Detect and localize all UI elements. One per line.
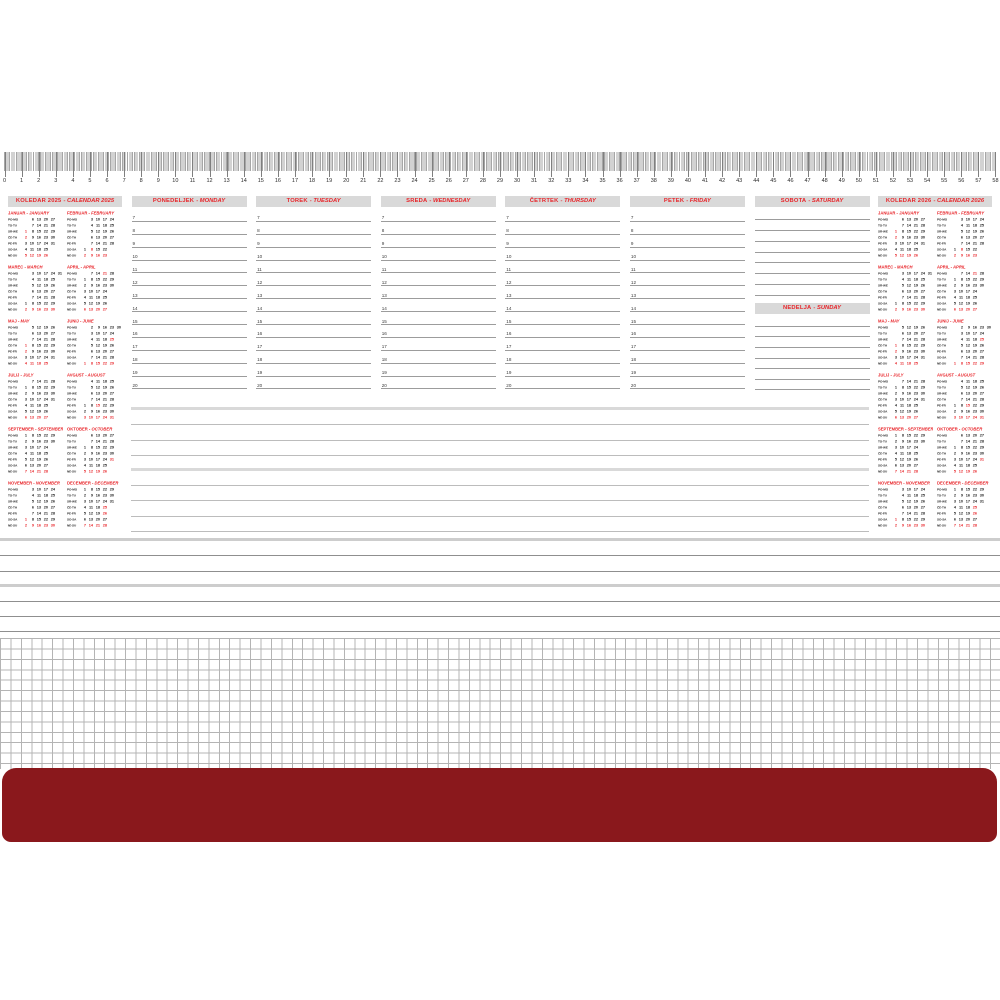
mini-month-day-label: NE-SU: [937, 308, 949, 311]
mini-month-week-row: NE-SU291623: [937, 252, 992, 258]
mini-month-date: 19: [970, 343, 977, 347]
mini-month-date: 16: [963, 493, 970, 497]
mini-month-date: 28: [48, 379, 55, 383]
mini-month-day-label: SO-SA: [937, 356, 949, 359]
hour-label: 18: [631, 357, 636, 362]
mini-month-title: DECEMBERDECEMBER: [937, 481, 992, 486]
mini-month-date: 17: [93, 499, 100, 503]
mini-month-day-label: ČE-TH: [67, 452, 79, 455]
hour-row: 13: [132, 286, 247, 299]
hour-row: 17: [381, 338, 496, 351]
mini-month-date: 31: [977, 457, 984, 461]
hour-label: 8: [506, 228, 509, 233]
mini-month-date: 15: [34, 433, 41, 437]
mini-month-date: 29: [48, 517, 55, 521]
mini-month-title: SEPTEMBERSEPTEMBER: [8, 427, 63, 432]
hour-row: 15: [381, 312, 496, 325]
mini-month-date: 23: [100, 409, 107, 413]
mini-month-date: 7: [897, 337, 904, 341]
mini-month-day-label: TO-TU: [8, 224, 20, 227]
mini-month-date: 26: [48, 499, 55, 503]
mini-month-date: 12: [34, 283, 41, 287]
mini-month-date: 26: [41, 457, 48, 461]
mini-month-day-label: TO-TU: [937, 278, 949, 281]
mini-month-date: 11: [897, 451, 904, 455]
hour-label: 8: [382, 228, 385, 233]
mini-month-day-label: TO-TU: [67, 386, 79, 389]
mini-month-date: 30: [984, 325, 991, 329]
mini-month-date: 26: [911, 409, 918, 413]
mini-month-date: 31: [925, 271, 932, 275]
mini-month-date: 8: [27, 301, 34, 305]
hour-row: 12: [381, 273, 496, 286]
mini-month-date: 13: [963, 235, 970, 239]
hour-rows: 7891011121314151617181920: [132, 209, 247, 389]
mini-month-date: 14: [897, 469, 904, 473]
hour-label: 9: [133, 241, 136, 246]
mini-month-date: 28: [107, 355, 114, 359]
ruler-cm-tick: [620, 152, 621, 177]
mini-month-date: 19: [911, 325, 918, 329]
ruler-cm-tick: [551, 152, 552, 177]
mini-month-date: 1: [79, 487, 86, 491]
hour-label: 12: [506, 280, 511, 285]
mini-month-date: 20: [100, 235, 107, 239]
mini-month-date: 16: [34, 439, 41, 443]
mini-month-date: 1: [79, 403, 86, 407]
hour-label: 11: [133, 267, 138, 272]
mini-month-date: 4: [897, 277, 904, 281]
mini-month: OKTOBEROCTOBERPO-MO6132027TO-TU7142128SR…: [937, 427, 992, 475]
hour-label: 10: [382, 254, 387, 259]
mini-month-date: 9: [956, 493, 963, 497]
mini-month-date: 10: [86, 415, 93, 419]
mini-month-date: 29: [107, 487, 114, 491]
mini-month-date: 1: [20, 517, 27, 521]
ruler-cm-number: 34: [582, 178, 588, 184]
ruler-cm-tick: [790, 152, 791, 177]
mini-month-day-label: PO-MO: [878, 272, 890, 275]
mini-month-week-row: NE-SU310172431: [67, 414, 122, 420]
mini-month-date: 3: [79, 457, 86, 461]
mini-month-date: 23: [41, 307, 48, 311]
mini-month-date: 3: [20, 397, 27, 401]
mini-month-date: 25: [911, 403, 918, 407]
hour-row: 12: [132, 273, 247, 286]
hour-label: 18: [506, 357, 511, 362]
mini-month-date: 21: [41, 511, 48, 515]
day-name-en: THURSDAY: [561, 196, 596, 207]
mini-month-date: 11: [956, 463, 963, 467]
mini-month-date: 3: [956, 331, 963, 335]
mini-month-date: 10: [897, 397, 904, 401]
mini-month-date: 11: [34, 493, 41, 497]
mini-month-date: 20: [911, 505, 918, 509]
hour-label: 10: [257, 254, 262, 259]
hour-row: 20: [132, 377, 247, 390]
mini-month-date: 22: [970, 277, 977, 281]
mini-month-date: 2: [890, 439, 897, 443]
mini-month-date: 3: [890, 355, 897, 359]
mini-month-date: 20: [911, 331, 918, 335]
ruler-cm-tick: [773, 152, 774, 177]
ruler-cm-tick: [261, 152, 262, 177]
mini-month-date: 21: [41, 379, 48, 383]
full-width-line: [0, 541, 1000, 556]
hour-label: 10: [506, 254, 511, 259]
hour-label: 17: [133, 344, 138, 349]
mini-month-date: 8: [956, 403, 963, 407]
note-line: [131, 425, 869, 440]
mini-month: FEBRUARFEBRUARYPO-MO3101724TO-TU4111825S…: [937, 211, 992, 259]
mini-month-day-label: NE-SU: [878, 470, 890, 473]
hour-row: 11: [630, 261, 745, 274]
mini-month-day-label: PE-FR: [937, 296, 949, 299]
hour-label: 16: [382, 331, 387, 336]
day-name-en: MONDAY: [196, 196, 225, 207]
mini-month-date: 15: [963, 277, 970, 281]
hour-row: 19: [256, 364, 371, 377]
mini-month-week-row: NE-SU29162330: [8, 306, 63, 312]
mini-month-date: 12: [904, 283, 911, 287]
mini-month: SEPTEMBERSEPTEMBERPO-MO18152229TO-TU2916…: [8, 427, 63, 475]
mini-month-date: 28: [918, 223, 925, 227]
mini-month-name-en: MARCH: [893, 265, 912, 270]
mini-month-name-en: APRIL: [949, 265, 965, 270]
mini-month-date: 9: [86, 493, 93, 497]
mini-month-date: 19: [41, 325, 48, 329]
hour-label: 15: [506, 319, 511, 324]
ruler-cm-number: 51: [873, 178, 879, 184]
mini-month-date: 24: [41, 445, 48, 449]
mini-month-date: 31: [107, 415, 114, 419]
mini-month-day-label: PE-FR: [878, 458, 890, 461]
mini-month-date: 6: [20, 463, 27, 467]
mini-month-date: 18: [100, 223, 107, 227]
mini-month-name-en: JANUARY: [895, 211, 919, 216]
mini-month-date: 20: [970, 433, 977, 437]
day-name-sl: PONEDELJEK: [153, 196, 194, 207]
ruler-cm-tick: [415, 152, 416, 177]
mini-month-day-label: SR-WE: [878, 446, 890, 449]
mini-month-date: 9: [897, 391, 904, 395]
sunday-line: [755, 369, 870, 380]
mini-month-date: 16: [34, 349, 41, 353]
ruler-cm-number: 33: [565, 178, 571, 184]
mini-month-date: 6: [79, 517, 86, 521]
ruler-cm-number: 20: [343, 178, 349, 184]
hour-row: 9: [630, 235, 745, 248]
mini-month-date: 12: [904, 499, 911, 503]
ruler-cm-tick: [842, 152, 843, 177]
mini-month-date: 9: [27, 235, 34, 239]
mini-month-date: 29: [977, 277, 984, 281]
mini-month-day-label: TO-TU: [937, 494, 949, 497]
mini-month-date: 30: [107, 493, 114, 497]
ruler-cm-tick: [637, 152, 638, 177]
mini-month-date: 23: [911, 439, 918, 443]
mini-month-date: 23: [970, 253, 977, 257]
mini-month-date: 20: [41, 289, 48, 293]
mini-month-date: 23: [41, 235, 48, 239]
mini-month-name-sl: FEBRUAR: [937, 211, 957, 216]
mini-month-date: 7: [27, 379, 34, 383]
ruler-cm-tick: [363, 152, 364, 177]
mini-month-date: 2: [949, 409, 956, 413]
mini-month-date: 12: [34, 325, 41, 329]
mini-month-day-label: PE-FR: [937, 350, 949, 353]
mini-month-date: 12: [93, 385, 100, 389]
hour-label: 12: [133, 280, 138, 285]
mini-month-date: 23: [970, 451, 977, 455]
hour-row: 7: [505, 209, 620, 222]
saturday-line: [755, 285, 870, 296]
hour-label: 15: [257, 319, 262, 324]
mini-month-date: 26: [918, 283, 925, 287]
hour-label: 14: [631, 306, 636, 311]
ruler-cm-tick: [534, 152, 535, 177]
mini-month-date: 31: [48, 355, 55, 359]
saturday-line: [755, 253, 870, 264]
ruler-cm-tick: [722, 152, 723, 177]
mini-month-date: 21: [970, 271, 977, 275]
mini-month-day-label: SO-SA: [67, 248, 79, 251]
mini-month-date: 19: [963, 469, 970, 473]
mini-month-week-row: NE-SU18152229: [937, 360, 992, 366]
mini-month-date: 12: [86, 511, 93, 515]
ruler-cm-tick: [73, 152, 74, 177]
mini-month-name-en: JUNE: [949, 319, 964, 324]
mini-month-day-label: PO-MO: [8, 326, 20, 329]
mini-month-date: 29: [107, 403, 114, 407]
ruler-cm-number: 27: [463, 178, 469, 184]
sunday-line: [755, 359, 870, 370]
mini-month-day-label: PO-MO: [8, 272, 20, 275]
mini-month-date: 5: [949, 301, 956, 305]
mini-month-date: 23: [970, 409, 977, 413]
mini-month-date: 6: [897, 217, 904, 221]
ruler-cm-tick: [483, 152, 484, 177]
ruler-cm-tick: [756, 152, 757, 177]
mini-month-date: 2: [890, 235, 897, 239]
mini-month-date: 29: [107, 277, 114, 281]
ruler-cm-number: 9: [157, 178, 160, 184]
ruler-cm-number: 25: [429, 178, 435, 184]
mini-month-date: 27: [918, 331, 925, 335]
mini-month-date: 8: [897, 301, 904, 305]
mini-month-date: 6: [956, 235, 963, 239]
mini-month-date: 26: [970, 469, 977, 473]
mini-month-date: 14: [93, 271, 100, 275]
mini-month-name-sl: JULIJ: [878, 373, 889, 378]
mini-month-date: 17: [34, 355, 41, 359]
mini-month-date: 27: [107, 235, 114, 239]
mini-month-date: 2: [20, 235, 27, 239]
mini-month-date: 3: [949, 457, 956, 461]
mini-month-date: 24: [107, 217, 114, 221]
mini-month-day-label: SO-SA: [67, 356, 79, 359]
mini-month-name-sl: AVGUST: [67, 373, 84, 378]
mini-month-date: 3: [890, 241, 897, 245]
mini-month-name-sl: AVGUST: [937, 373, 954, 378]
mini-month-day-label: SO-SA: [8, 464, 20, 467]
mini-month-date: 16: [93, 283, 100, 287]
mini-month-date: 5: [27, 499, 34, 503]
mini-month-date: 1: [890, 385, 897, 389]
mini-month-date: 24: [911, 355, 918, 359]
ruler-cm-number: 19: [326, 178, 332, 184]
mini-month-date: 27: [100, 517, 107, 521]
mini-month-day-label: NE-SU: [937, 254, 949, 257]
mini-month-day-label: SO-SA: [8, 248, 20, 251]
mini-month-date: 13: [86, 517, 93, 521]
ruler-cm-number: 57: [975, 178, 981, 184]
mini-month-day-label: SR-WE: [878, 230, 890, 233]
mini-month-date: 11: [956, 295, 963, 299]
day-column-tuesday: TOREKTUESDAY7891011121314151617181920: [256, 196, 371, 389]
mini-month-week-row: NE-SU4111825: [878, 360, 933, 366]
mini-month-day-label: PE-FR: [8, 404, 20, 407]
mini-month-date: 11: [904, 277, 911, 281]
mini-month-date: 3: [79, 499, 86, 503]
mini-month-day-label: SR-WE: [8, 230, 20, 233]
year-title-sl: KOLEDAR 2026: [886, 196, 932, 207]
mini-month-date: 19: [93, 469, 100, 473]
mini-month-date: 10: [956, 289, 963, 293]
mini-month-date: 14: [93, 241, 100, 245]
mini-month-date: 29: [977, 403, 984, 407]
mini-month-date: 24: [41, 355, 48, 359]
mini-month-date: 6: [27, 331, 34, 335]
mini-month-date: 28: [107, 241, 114, 245]
mini-month-day-label: SO-SA: [8, 518, 20, 521]
note-line: [131, 471, 869, 486]
ruler-cm-tick: [312, 152, 313, 177]
mini-month-date: 9: [27, 391, 34, 395]
mini-month-date: 28: [48, 511, 55, 515]
mini-month-date: 26: [107, 343, 114, 347]
mini-month-date: 17: [911, 487, 918, 491]
hour-row: 10: [505, 248, 620, 261]
mini-month-date: 3: [949, 415, 956, 419]
mini-month-date: 11: [963, 379, 970, 383]
mini-month-date: 14: [27, 469, 34, 473]
mini-month-date: 30: [918, 439, 925, 443]
mini-month-date: 21: [970, 241, 977, 245]
hour-row: 8: [381, 222, 496, 235]
mini-month-date: 29: [918, 301, 925, 305]
mini-month-date: 4: [27, 277, 34, 281]
hour-label: 16: [506, 331, 511, 336]
mini-month-date: 10: [956, 457, 963, 461]
mini-month-date: 6: [956, 349, 963, 353]
mini-month-date: 11: [956, 505, 963, 509]
mini-month-date: 12: [897, 457, 904, 461]
hour-label: 16: [257, 331, 262, 336]
mini-month-date: 12: [897, 253, 904, 257]
hour-label: 19: [506, 370, 511, 375]
ruler-cm-number: 26: [446, 178, 452, 184]
ruler-cm-number: 56: [958, 178, 964, 184]
hour-label: 7: [133, 215, 136, 220]
mini-month-date: 2: [890, 391, 897, 395]
mini-month-date: 26: [977, 385, 984, 389]
mini-month-date: 21: [911, 511, 918, 515]
day-column-thursday: ČETRTEKTHURSDAY7891011121314151617181920: [505, 196, 620, 389]
mini-month-name-sl: JANUAR: [8, 211, 25, 216]
mini-month-date: 14: [904, 511, 911, 515]
mini-month-day-label: SR-WE: [878, 392, 890, 395]
mini-month-date: 30: [977, 409, 984, 413]
mini-month-day-label: SR-WE: [67, 446, 79, 449]
mini-month-date: 28: [977, 271, 984, 275]
mini-month-date: 25: [107, 337, 114, 341]
ruler-cm-tick: [466, 152, 467, 177]
mini-month-date: 25: [911, 247, 918, 251]
mini-month-name-sl: APRIL: [67, 265, 79, 270]
mini-month-name-en: NOVEMBER: [902, 481, 930, 486]
mini-month-date: 3: [20, 355, 27, 359]
mini-month-name-sl: MAJ: [8, 319, 17, 324]
mini-month-day-label: PO-MO: [937, 380, 949, 383]
mini-month-date: 2: [20, 439, 27, 443]
mini-month-date: 2: [956, 325, 963, 329]
hour-row: 16: [132, 325, 247, 338]
mini-month-day-label: TO-TU: [878, 332, 890, 335]
mini-month-day-label: PO-MO: [937, 488, 949, 491]
mini-month-date: 12: [956, 511, 963, 515]
mini-month-day-label: TO-TU: [67, 278, 79, 281]
mini-month-date: 19: [963, 301, 970, 305]
ruler-cm-number: 11: [190, 178, 196, 184]
mini-month-date: 10: [86, 289, 93, 293]
mini-month-date: 18: [911, 277, 918, 281]
hour-row: 9: [132, 235, 247, 248]
year-title-en: CALENDAR 2025: [63, 196, 114, 207]
saturday-line: [755, 242, 870, 253]
mini-month-date: 17: [970, 217, 977, 221]
ruler-cm-tick: [278, 152, 279, 177]
mini-month-date: 28: [48, 295, 55, 299]
hour-row: 16: [256, 325, 371, 338]
mini-month-day-label: PO-MO: [878, 326, 890, 329]
mini-month-date: 14: [963, 241, 970, 245]
mini-month-date: 30: [107, 409, 114, 413]
full-width-line: [0, 526, 1000, 541]
mini-month-day-label: PO-MO: [67, 272, 79, 275]
mini-month-date: 21: [41, 295, 48, 299]
mini-month-date: 26: [977, 229, 984, 233]
mini-month-date: 6: [890, 415, 897, 419]
ruler-cm-number: 3: [54, 178, 57, 184]
mini-month-date: 6: [956, 391, 963, 395]
saturday-header: SOBOTA SATURDAY: [755, 196, 870, 207]
mini-month-date: 26: [48, 325, 55, 329]
mini-month-date: 9: [956, 253, 963, 257]
hour-row: 16: [505, 325, 620, 338]
mini-month-date: 1: [890, 229, 897, 233]
hour-label: 14: [506, 306, 511, 311]
mini-month-date: 10: [963, 331, 970, 335]
mini-month-day-label: SR-WE: [878, 284, 890, 287]
hour-label: 19: [257, 370, 262, 375]
saturday-line: [755, 263, 870, 274]
mini-month-date: 11: [93, 379, 100, 383]
mini-month-date: 8: [86, 247, 93, 251]
mini-month-date: 6: [949, 517, 956, 521]
mini-month-date: 14: [34, 295, 41, 299]
mini-month-day-label: NE-SU: [878, 362, 890, 365]
